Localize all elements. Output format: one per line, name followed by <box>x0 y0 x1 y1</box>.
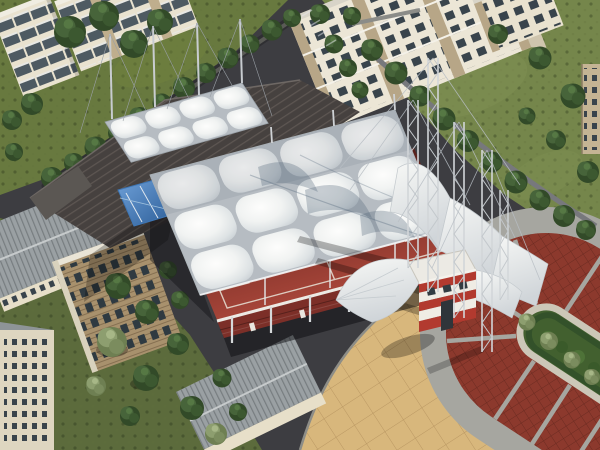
tree <box>576 220 596 240</box>
tree <box>310 4 330 24</box>
tree <box>133 365 159 391</box>
tree <box>147 9 173 35</box>
tree <box>540 332 558 350</box>
tree <box>352 82 369 99</box>
tree <box>553 205 575 227</box>
tree <box>529 47 552 70</box>
tree <box>339 59 357 77</box>
tree <box>361 39 383 61</box>
tree <box>584 369 600 385</box>
tree <box>546 130 566 150</box>
tree <box>241 35 260 54</box>
building-east-edge <box>582 64 600 154</box>
tree <box>21 93 43 115</box>
tree <box>97 327 127 357</box>
tree <box>343 7 361 25</box>
tree <box>325 35 344 54</box>
tree <box>488 24 508 44</box>
tree <box>135 300 159 324</box>
tree <box>120 30 148 58</box>
tree <box>2 110 22 130</box>
tree <box>561 84 586 109</box>
tree <box>519 108 536 125</box>
house-west-edge <box>0 322 54 450</box>
render-viewport: Aerial 3D architectural rendering: white… <box>0 0 600 450</box>
tree <box>385 62 408 85</box>
tree <box>530 190 551 211</box>
tree <box>205 423 227 445</box>
gate-door <box>441 299 453 331</box>
tree <box>519 314 536 331</box>
tree <box>89 1 119 31</box>
tree <box>229 403 247 421</box>
tree <box>262 20 283 41</box>
tree <box>564 352 581 369</box>
tree <box>180 396 204 420</box>
tree <box>5 143 23 161</box>
tree <box>120 406 140 426</box>
tree <box>167 333 189 355</box>
aerial-render: Aerial 3D architectural rendering: white… <box>0 0 600 450</box>
tree <box>54 16 86 48</box>
tree <box>283 9 301 27</box>
tree <box>433 108 456 131</box>
tree <box>213 369 232 388</box>
tree <box>577 161 599 183</box>
tree <box>86 376 106 396</box>
